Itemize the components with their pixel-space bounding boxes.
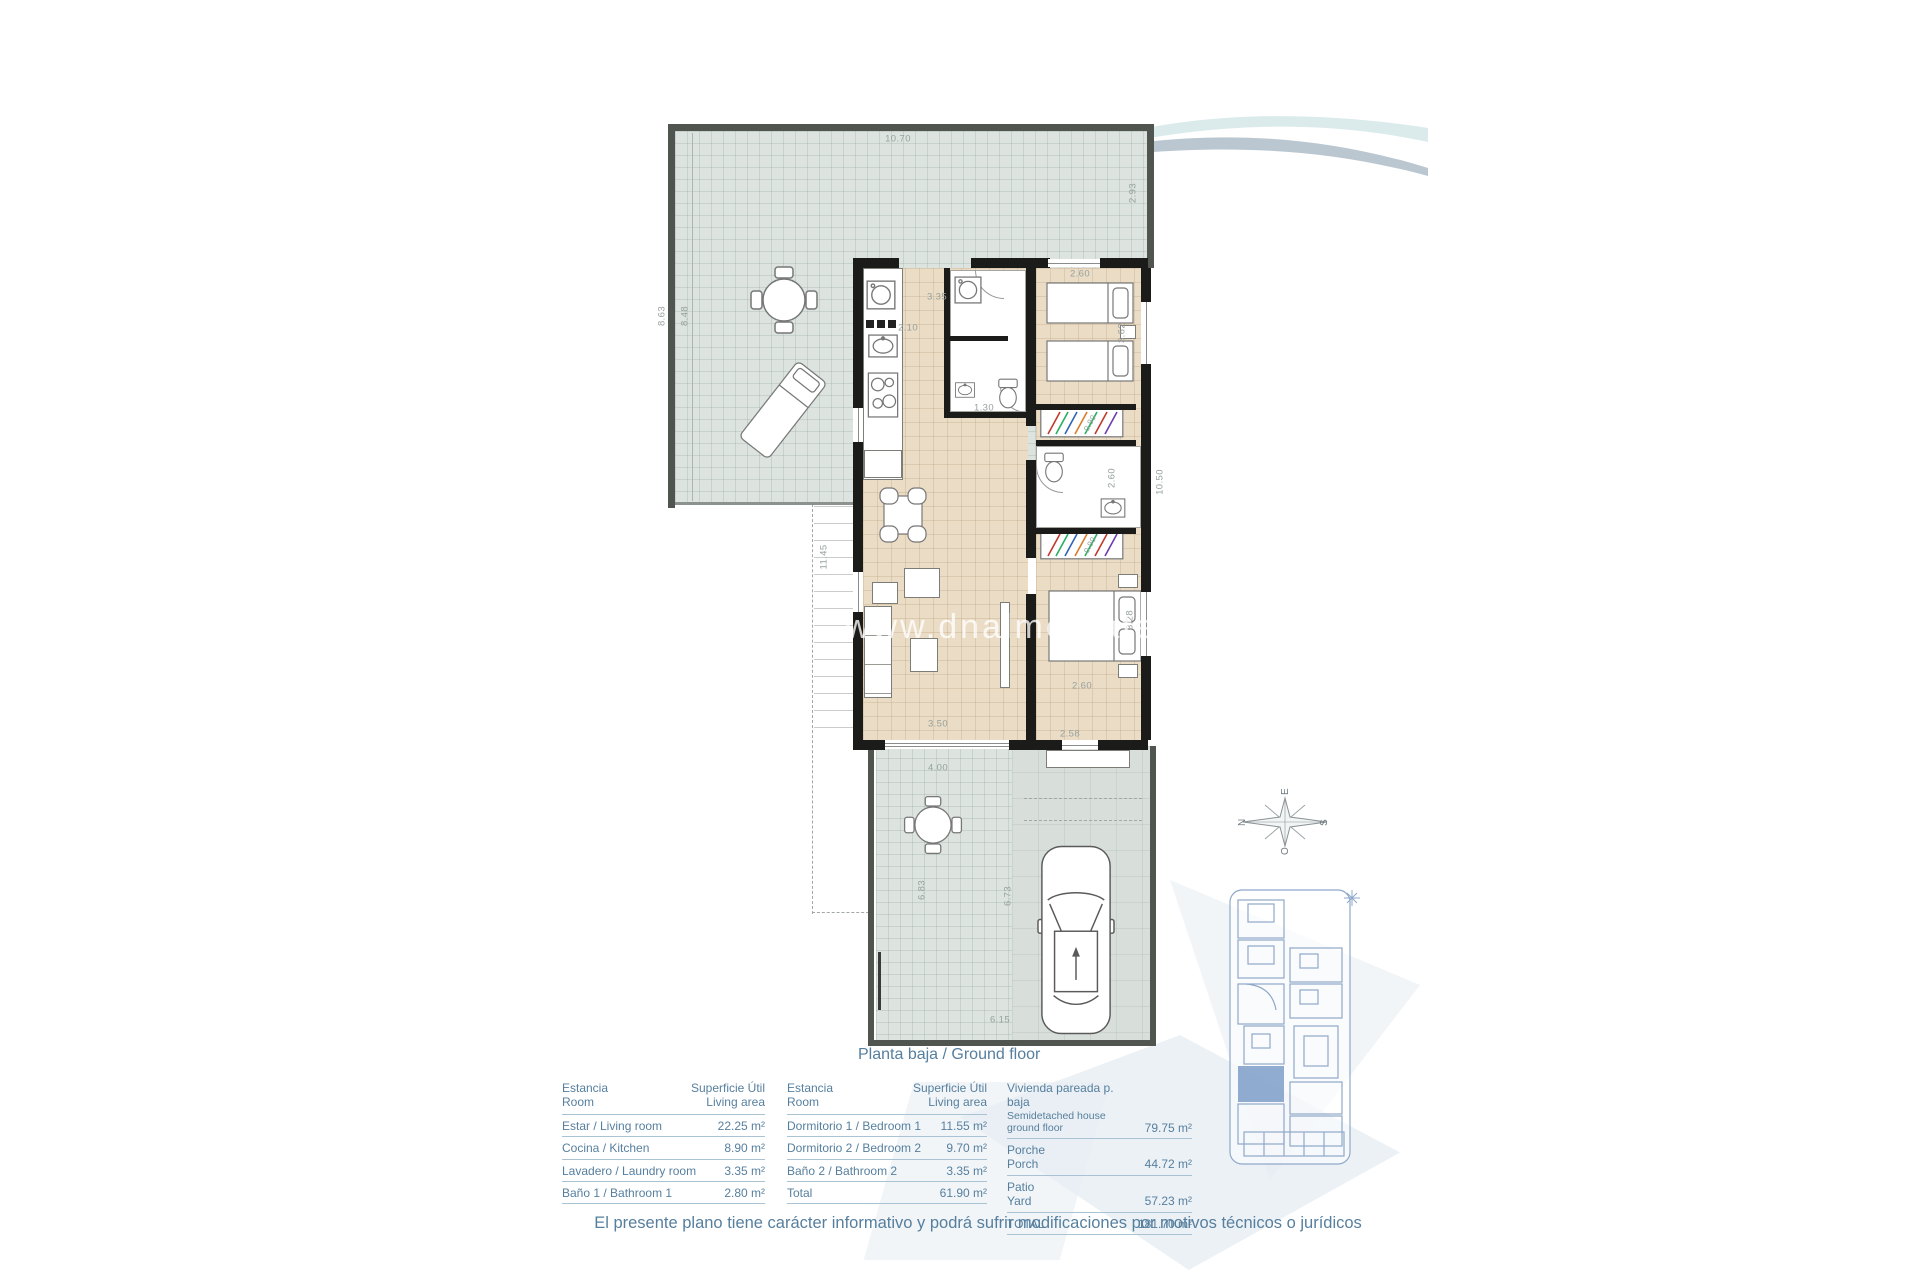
table-row: Estar / Living room22.25 m²: [562, 1115, 765, 1137]
porch-step: [1046, 750, 1130, 768]
table-row: Baño 1 / Bathroom 12.80 m²: [562, 1182, 765, 1204]
table-row: Dormitorio 1 / Bedroom 111.55 m²: [787, 1115, 987, 1137]
dim-bedroom1-width: 2.60: [1070, 269, 1090, 280]
wall: [853, 268, 863, 408]
disclaimer-text: El presente plano tiene carácter informa…: [58, 1214, 1898, 1233]
dim-house-left-depth: 11.45: [819, 544, 830, 569]
wall: [1098, 740, 1148, 750]
wall: [1141, 268, 1151, 302]
row-value: 11.55 m²: [933, 1119, 987, 1133]
compass-south-label: S: [1319, 819, 1328, 826]
decorative-swoosh: [1128, 98, 1428, 184]
site-plan-minimap: [1224, 884, 1364, 1172]
dim-terrace-left-inner: 8.48: [680, 306, 691, 326]
single-bed-2: [1046, 340, 1134, 382]
floor-plan-page: 10.70 2.93 8.63 8.48 3.35 2.10 2.60 3.62…: [0, 0, 1920, 1280]
dim-entry-width: 3.35: [927, 292, 947, 303]
row-label: Estar / Living room: [562, 1119, 662, 1133]
terrace-wall-right: [1147, 124, 1154, 268]
kitchen-sink-icon: [867, 334, 899, 358]
wall: [1036, 440, 1136, 446]
table-row: Vivienda pareada p. baja Semidetached ho…: [1007, 1081, 1192, 1139]
patio-gate: [878, 952, 881, 1010]
dim-bedroom1-depth: 3.62: [1117, 323, 1128, 343]
terrace-round-table: [748, 264, 820, 336]
wardrobe-2: [1040, 530, 1124, 560]
patio-round-table: [902, 794, 964, 856]
armchair: [904, 568, 940, 598]
wall: [1141, 364, 1151, 592]
row-value: 61.90 m²: [932, 1186, 987, 1200]
wall: [853, 442, 863, 572]
terrace-wall-top: [668, 124, 1154, 131]
compass-west-label: O: [1280, 847, 1291, 855]
wall: [1026, 268, 1036, 426]
sink-icon: [954, 382, 976, 398]
wall: [1141, 656, 1151, 740]
areas-table-2-header: Estancia Room Superficie Útil Living are…: [787, 1081, 987, 1115]
highlighted-unit: [1238, 1066, 1284, 1102]
dim-house-right-depth: 10.50: [1155, 469, 1166, 495]
dim-porch-width: 2.58: [1060, 729, 1080, 740]
header-area-es: Superficie Útil: [691, 1081, 765, 1095]
row-label: Cocina / Kitchen: [562, 1141, 649, 1155]
row-label: Dormitorio 2 / Bedroom 2: [787, 1141, 921, 1155]
table-row: Total61.90 m²: [787, 1182, 987, 1204]
dining-table-set: [872, 482, 934, 548]
row-value: 22.25 m²: [710, 1119, 765, 1133]
washing-machine-icon: [954, 276, 982, 304]
parking-dashed-line: [1024, 798, 1142, 799]
row-label: Dormitorio 1 / Bedroom 1: [787, 1119, 921, 1133]
row-label-es: Vivienda pareada p. baja: [1007, 1081, 1137, 1110]
dim-bathroom2-depth: 2.60: [1107, 468, 1118, 488]
row-value: 57.23 m²: [1137, 1194, 1192, 1208]
parking-dashed-line: [1024, 820, 1142, 821]
wall: [944, 268, 950, 418]
compass-rose: E O N S: [1238, 786, 1328, 856]
wall: [1100, 258, 1148, 268]
row-label-es: Patio: [1007, 1180, 1034, 1194]
terrace-wall-left: [668, 124, 675, 508]
toilet-icon: [1042, 452, 1066, 484]
header-room-en: Room: [787, 1095, 833, 1109]
side-table: [872, 582, 898, 604]
table-row: Baño 2 / Bathroom 23.35 m²: [787, 1160, 987, 1182]
table-row: Porche Porch 44.72 m²: [1007, 1139, 1192, 1176]
window: [853, 408, 863, 442]
fridge: [864, 450, 902, 478]
plan-caption: Planta baja / Ground floor: [858, 1046, 1040, 1064]
toilet-icon: [996, 378, 1020, 410]
row-value: 8.90 m²: [716, 1141, 765, 1155]
row-value: 44.72 m²: [1137, 1157, 1192, 1171]
nightstand: [1118, 574, 1138, 588]
areas-table-1: Estancia Room Superficie Útil Living are…: [562, 1081, 765, 1204]
row-value: 79.75 m²: [1137, 1121, 1192, 1135]
row-label-en: Semidetached house ground floor: [1007, 1110, 1137, 1135]
dim-kitchen-width: 2.10: [898, 323, 918, 334]
wall: [1036, 528, 1136, 534]
table-row: Cocina / Kitchen8.90 m²: [562, 1137, 765, 1159]
table-row: Lavadero / Laundry room3.35 m²: [562, 1160, 765, 1182]
dim-terrace-right: 2.93: [1128, 183, 1139, 203]
header-room-en: Room: [562, 1095, 608, 1109]
compass-east-label: E: [1280, 788, 1291, 795]
boundary-dashed-line: [812, 912, 874, 913]
header-area-en: Living area: [913, 1095, 987, 1109]
areas-table-summary: Vivienda pareada p. baja Semidetached ho…: [1007, 1081, 1192, 1235]
row-label-es: Porche: [1007, 1143, 1045, 1157]
dim-patio-left-depth: 6.83: [917, 880, 928, 900]
porch-door: [1062, 741, 1098, 749]
dim-patio-width: 4.00: [928, 763, 948, 774]
terrace-inner-line: [692, 133, 693, 501]
dim-terrace-top: 10.70: [885, 134, 911, 145]
stove-icon: [867, 372, 899, 418]
dim-terrace-left-outer: 8.63: [657, 306, 668, 326]
row-label: Baño 2 / Bathroom 2: [787, 1164, 897, 1178]
sliding-glass-door: [885, 741, 1009, 749]
dim-patio-right-depth: 6.73: [1003, 886, 1014, 906]
window: [853, 572, 863, 612]
row-value: 3.35 m²: [716, 1164, 765, 1178]
header-room-es: Estancia: [562, 1081, 608, 1095]
table-row: Patio Yard 57.23 m²: [1007, 1176, 1192, 1213]
patio-wall-right: [1150, 746, 1156, 1046]
areas-table-1-header: Estancia Room Superficie Útil Living are…: [562, 1081, 765, 1115]
compass-north-label: N: [1238, 819, 1248, 826]
boundary-dashed-line: [812, 504, 813, 914]
wall: [1009, 740, 1062, 750]
header-area-en: Living area: [691, 1095, 765, 1109]
sink-icon: [1100, 498, 1126, 518]
nightstand: [1118, 664, 1138, 678]
patio-wall-left: [868, 746, 874, 1046]
dim-living-width: 3.50: [928, 719, 948, 730]
single-bed-1: [1046, 282, 1134, 324]
row-label: Lavadero / Laundry room: [562, 1164, 696, 1178]
wall: [971, 258, 1050, 268]
row-label-en: Yard: [1007, 1194, 1034, 1208]
row-label-en: Porch: [1007, 1157, 1045, 1171]
areas-table-2: Estancia Room Superficie Útil Living are…: [787, 1081, 987, 1204]
table-row: Dormitorio 2 / Bedroom 29.70 m²: [787, 1137, 987, 1159]
terrace-bottom-edge: [675, 502, 855, 505]
dim-patio-bottom-width: 6.15: [990, 1015, 1010, 1026]
wall: [1026, 460, 1036, 558]
window: [1141, 302, 1151, 364]
wall: [853, 258, 899, 268]
photo-watermark-text: www.dnalmestate: [845, 608, 1156, 647]
row-label: Total: [787, 1186, 812, 1200]
wall: [853, 740, 885, 750]
header-room-es: Estancia: [787, 1081, 833, 1095]
window: [1048, 259, 1100, 267]
dim-hall: 1.30: [974, 403, 994, 414]
dim-bedroom2-width: 2.60: [1072, 681, 1092, 692]
kitchen-appliance-icon: [866, 280, 896, 310]
wall: [1036, 404, 1136, 410]
row-value: 3.35 m²: [938, 1164, 987, 1178]
patio-floor: [876, 746, 1012, 1040]
wardrobe-1: [1040, 408, 1124, 438]
wall: [950, 336, 1008, 341]
row-label: Baño 1 / Bathroom 1: [562, 1186, 672, 1200]
car-top-view: [1038, 842, 1114, 1038]
kitchen-modules: [866, 320, 898, 328]
header-area-es: Superficie Útil: [913, 1081, 987, 1095]
row-value: 9.70 m²: [938, 1141, 987, 1155]
row-value: 2.80 m²: [716, 1186, 765, 1200]
